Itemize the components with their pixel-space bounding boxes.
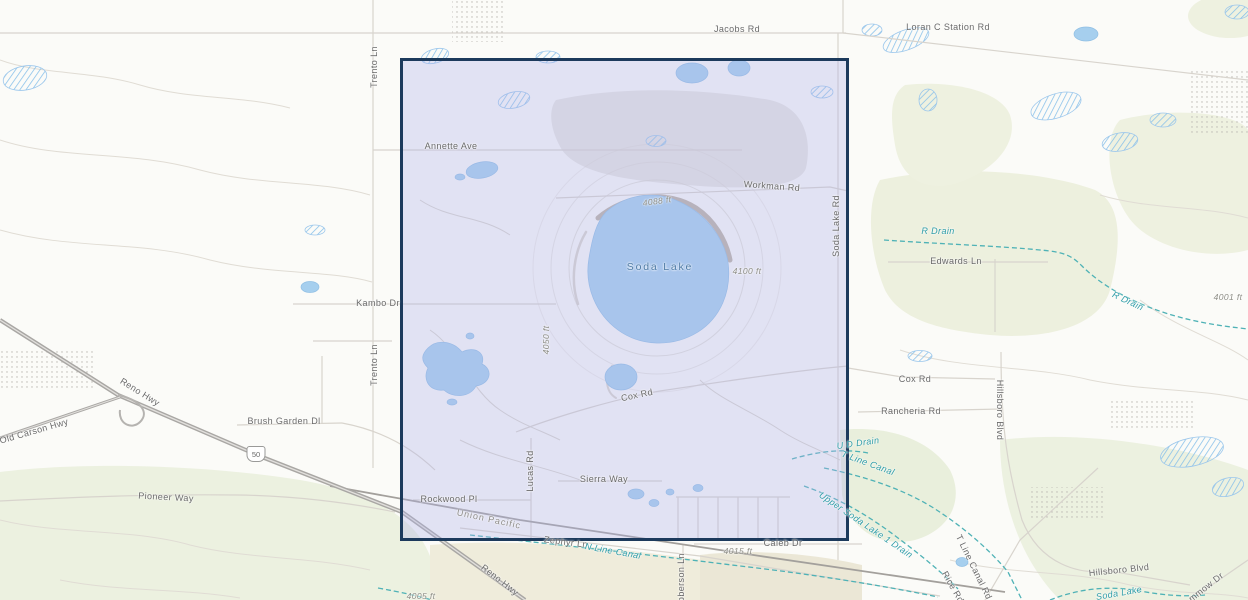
us-route-50-shield: 50 [247,446,266,462]
map-canvas[interactable]: 50 Jacobs Rd Loran C Station Rd Trento L… [0,0,1248,600]
route-number: 50 [252,450,260,459]
selection-rectangle[interactable] [400,58,849,541]
